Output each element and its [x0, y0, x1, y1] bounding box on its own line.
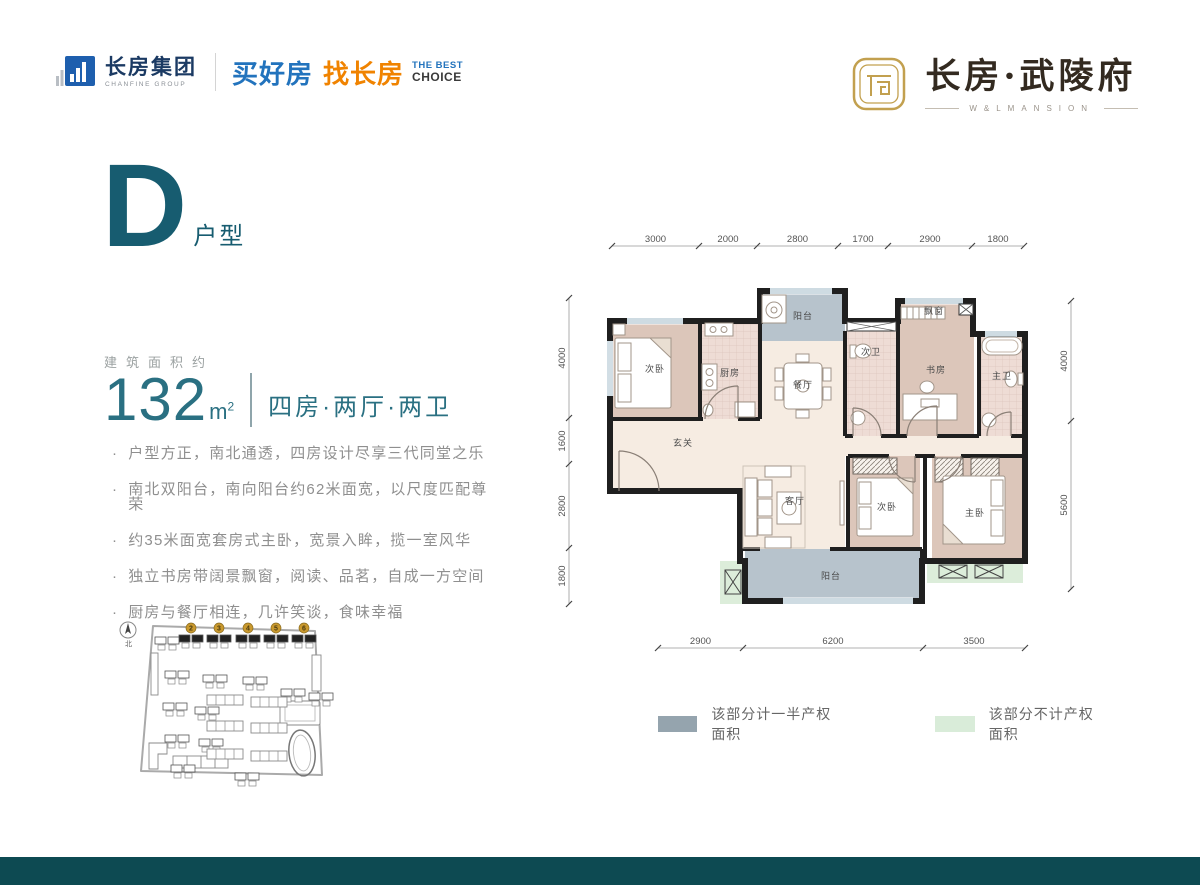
area-unit: m2 — [209, 399, 234, 427]
feature-item: ·约35米面宽套房式主卧，宽景入眸，揽一室风华 — [112, 533, 502, 548]
compass-icon: 北 — [120, 622, 136, 648]
group-logo-icon — [55, 52, 95, 92]
room-label: 次卧 — [645, 363, 665, 374]
dim-label: 2900 — [919, 234, 940, 245]
dim-label: 2900 — [690, 636, 711, 647]
dim-label: 1800 — [987, 234, 1008, 245]
dim-label: 3500 — [963, 636, 984, 647]
room-label: 主卧 — [965, 507, 985, 518]
room-label: 厨房 — [720, 367, 740, 378]
room-label: 餐厅 — [793, 379, 813, 390]
footer-bar — [0, 857, 1200, 885]
legend-item-no-area: 该部分不计产权面积 — [935, 704, 1104, 744]
unit-letter: D — [102, 158, 187, 255]
dim-label: 2800 — [787, 234, 808, 245]
building-number: 4 — [246, 626, 250, 633]
room-label: 客厅 — [785, 495, 805, 506]
feature-item: ·南北双阳台，南向阳台约62米面宽，以尺度匹配尊荣 — [112, 482, 502, 512]
room-label: 飘窗 — [924, 305, 944, 316]
slogan-buy: 买好房 — [232, 54, 313, 91]
dim-label: 2800 — [557, 495, 568, 516]
room-label: 次卫 — [861, 346, 881, 357]
subtitle-rule-left — [925, 108, 959, 109]
building-number: 5 — [274, 626, 278, 633]
feature-list: ·户型方正，南北通透，四房设计尽享三代同堂之乐·南北双阳台，南向阳台约62米面宽… — [112, 446, 502, 641]
slogan-choice: CHOICE — [412, 71, 463, 84]
room-layout: 四房·两厅·两卫 — [268, 387, 452, 427]
unit-type: D 户型 — [102, 158, 245, 255]
area-divider — [250, 373, 252, 427]
brand-slogan: 买好房 找长房 THE BEST CHOICE — [232, 54, 463, 91]
group-name-en: CHANFINE GROUP — [105, 81, 197, 88]
dim-label: 1800 — [557, 565, 568, 586]
building-number: 3 — [217, 626, 221, 633]
building-number: 2 — [189, 626, 193, 633]
group-brand: 长房集团 CHANFINE GROUP 买好房 找长房 THE BEST CHO… — [55, 52, 463, 92]
site-plan: 北 23456 — [115, 613, 350, 801]
subtitle-rule-right — [1104, 108, 1138, 109]
unit-suffix: 户型 — [193, 216, 245, 255]
legend-label-none: 该部分不计产权面积 — [989, 704, 1104, 744]
brochure-page: 长房集团 CHANFINE GROUP 买好房 找长房 THE BEST CHO… — [0, 0, 1200, 885]
dim-label: 1600 — [557, 430, 568, 451]
project-title: 长房·武陵府 — [925, 56, 1138, 98]
dim-label: 5600 — [1059, 494, 1070, 515]
svg-text:北: 北 — [125, 640, 132, 648]
building-number: 6 — [302, 626, 306, 633]
floor-plan: 3000200028001700290018002900620035004000… — [555, 226, 1085, 660]
project-subtitle-row: W&LMANSION — [925, 104, 1138, 113]
feature-item: ·独立书房带阔景飘窗，阅读、品茗，自成一方空间 — [112, 569, 502, 584]
project-subtitle: W&LMANSION — [969, 104, 1094, 113]
room-label: 阳台 — [821, 570, 841, 581]
legend-label-half: 该部分计一半产权面积 — [711, 704, 839, 744]
dim-label: 4000 — [557, 347, 568, 368]
area-value: 132 — [104, 373, 207, 427]
feature-item: ·户型方正，南北通透，四房设计尽享三代同堂之乐 — [112, 446, 502, 461]
area-legend: 该部分计一半产权面积 该部分不计产权面积 — [658, 704, 1200, 744]
room-label: 阳台 — [793, 310, 813, 321]
dim-label: 1700 — [852, 234, 873, 245]
room-label: 玄关 — [673, 437, 693, 448]
dim-label: 4000 — [1059, 350, 1070, 371]
legend-swatch-half — [658, 716, 697, 732]
legend-item-half-area: 该部分计一半产权面积 — [658, 704, 839, 744]
group-name: 长房集团 — [105, 57, 197, 78]
project-brand: 长房·武陵府 W&LMANSION — [851, 56, 1138, 113]
legend-swatch-none — [935, 716, 974, 732]
dim-label: 6200 — [822, 636, 843, 647]
area-block: 建筑面积约 132 m2 四房·两厅·两卫 — [104, 352, 452, 427]
slogan-find: 找长房 — [323, 54, 404, 91]
dim-label: 3000 — [645, 234, 666, 245]
brand-divider — [215, 53, 216, 91]
room-label: 书房 — [926, 364, 946, 375]
seal-icon — [851, 56, 907, 112]
room-label: 次卧 — [877, 501, 897, 512]
dim-label: 2000 — [717, 234, 738, 245]
room-label: 主卫 — [992, 370, 1012, 381]
